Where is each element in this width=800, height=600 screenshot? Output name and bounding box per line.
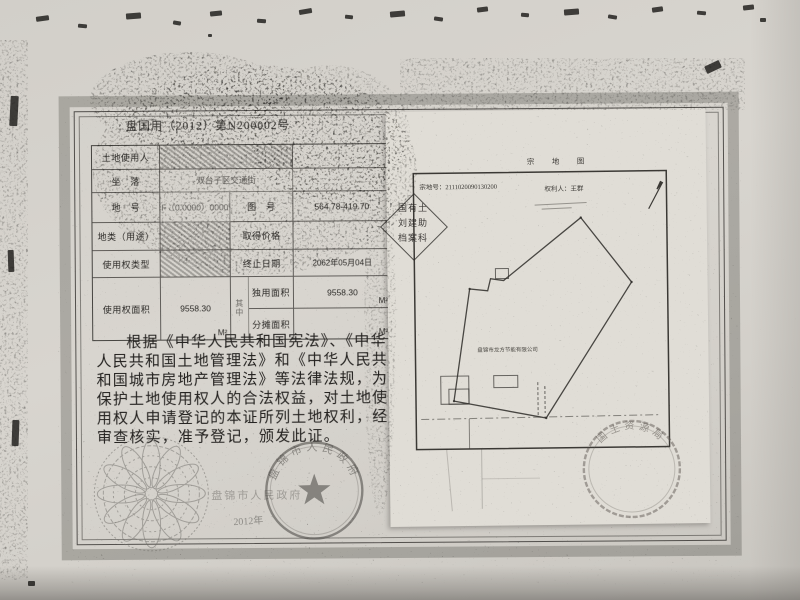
label-map-number: 图 号 (230, 192, 293, 222)
value-map-number: 564.78-419.70 (293, 191, 390, 222)
copy-artifact-mark (78, 24, 87, 29)
copy-artifact-mark (12, 420, 20, 446)
label-land-use: 地类（用途） (92, 223, 160, 251)
empty-cell (293, 144, 390, 169)
north-arrow-icon (648, 182, 662, 209)
value-location: 双台子区交通街 (160, 169, 293, 193)
body-text-line: 人民共和国土地管理法》和《中华人民共 (96, 351, 398, 372)
value-land-use (160, 222, 230, 250)
copy-artifact-mark (257, 19, 266, 24)
value-land-user (160, 145, 293, 170)
label-right-type: 使用权类型 (93, 251, 161, 278)
copy-artifact-mark (126, 12, 141, 19)
copy-artifact-mark (9, 96, 19, 126)
label-parcel-number: 地 号 (92, 193, 160, 223)
label-of-which: 其中 (231, 277, 249, 339)
company-name: 盘锦市龙方节能有限公司 (477, 345, 538, 354)
label-location: 坐 落 (92, 170, 160, 193)
value-right-type (161, 250, 231, 277)
copy-artifact-mark (697, 11, 706, 16)
value-acquisition-price (293, 221, 390, 250)
empty-cell (293, 168, 390, 192)
body-text-line: 和国城市房地产管理法》等法律法规，为 (96, 370, 398, 391)
value-use-area: 9558.30M² (161, 277, 231, 339)
diamond-stamp-line: 刘建助 (379, 216, 447, 229)
holder-name-text: 权利人：王群 (544, 184, 584, 193)
body-text-line: 根据《中华人民共和国宪法》、《中华 (96, 332, 398, 353)
copy-artifact-mark (208, 34, 212, 37)
parcel-map-sheet: 宗 地 图 宗地号：2111020090130200 权利人：王群 (385, 108, 710, 527)
svg-text:国土资源局: 国土资源局 (594, 419, 668, 446)
body-text-line: 用权人申请登记的本证所列土地权利，经 (97, 408, 399, 429)
illegible-noise (160, 222, 229, 249)
copy-artifact-mark (8, 250, 15, 272)
value-exclusive-area: 9558.30M² (294, 276, 391, 309)
illegible-noise (160, 145, 292, 169)
diamond-archive-stamp: 国有土 刘建助 档案科 (379, 191, 447, 261)
unit-m2: M² (379, 296, 388, 305)
body-text-line: 保护土地使用权人的合法权益，对土地使 (97, 389, 399, 410)
land-info-table: 土地使用人 坐 落 双台子区交通街 地 号 F（0.0000）0000 图 号 … (91, 143, 392, 341)
value-end-date: 2062年05月04日 (294, 249, 391, 277)
copy-artifact-mark (760, 18, 766, 22)
diamond-stamp-line: 国有土 (379, 201, 447, 214)
seal-area: 盘锦市人民政府 2012年 盘锦市人民政府 (61, 428, 392, 562)
copy-artifact-mark (521, 13, 529, 18)
issuer-name-text: 盘锦市人民政府 (211, 488, 302, 503)
guilloche-rosette (94, 436, 209, 551)
label-land-user: 土地使用人 (92, 146, 160, 170)
boundary-points (451, 216, 635, 421)
illegible-noise (161, 250, 230, 276)
label-exclusive-area: 独用面积 (249, 277, 294, 309)
issue-date: 2012年 (233, 513, 264, 528)
parcel-polygon (452, 217, 633, 419)
bureau-stamp-text: 国土资源局 (594, 419, 668, 446)
illegible-note (535, 203, 587, 210)
certificate-number: 盘国用（2012）第N200002号 (126, 117, 290, 134)
scanned-photo: 盘国用（2012）第N200002号 土地使用人 坐 落 双台子区交通街 地 号… (0, 0, 800, 600)
diamond-stamp-line: 档案科 (379, 231, 447, 244)
copy-artifact-mark (28, 581, 35, 586)
label-acquisition-price: 取得价格 (230, 222, 293, 250)
map-border (413, 171, 669, 450)
copy-artifact-mark (564, 8, 579, 15)
label-end-date: 终止日期 (231, 250, 294, 277)
land-bureau-stamp: 国土资源局 (583, 419, 680, 518)
copy-artifact-mark (345, 15, 353, 20)
label-use-area: 使用权面积 (93, 278, 161, 340)
star-icon (298, 473, 331, 504)
map-title: 宗 地 图 (527, 155, 590, 166)
value-parcel-number: F（0.0000）0000 (160, 192, 230, 222)
